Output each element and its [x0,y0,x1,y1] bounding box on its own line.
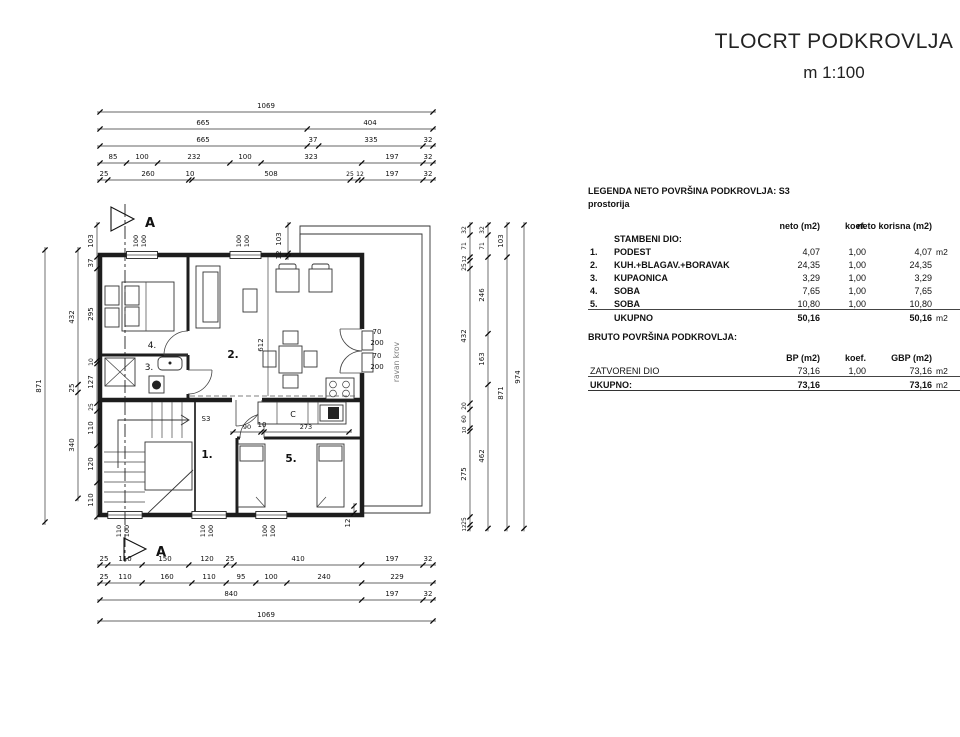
nightstand [105,308,119,327]
living-room-furniture [196,264,332,388]
pillow [125,286,139,305]
legend-header-row: neto (m2) koef. neto korisna (m2) [588,218,960,231]
row-koef: 1,00 [848,366,866,376]
door-swings [164,331,264,438]
dim-label: 1069 [257,611,275,619]
dim-label: 163 [478,352,486,365]
drawing-scale: m 1:100 [688,63,960,83]
dim-label: 32 [424,136,433,144]
dim-chain-right-1 [467,222,472,531]
dim-label: 60 [461,415,468,423]
section-marker-icon [111,207,134,231]
pillow [125,307,139,326]
room-label-5: 5. [285,453,296,465]
dim-label: 197 [385,590,398,598]
total-neto: 50,16 [797,313,820,323]
dim-label: 432 [460,329,468,342]
legend-title: LEGENDA NETO POVRŠINA PODKROVLJA: S3 [588,186,960,199]
dim-label: 275 [460,467,468,480]
row-korisna: 10,80 [909,299,932,309]
coffee-table [243,289,257,312]
nightstand [105,286,119,305]
total-bp: 73,16 [797,380,820,390]
window-size-label: 100 [207,525,215,537]
dim-chain-top-2 [97,126,436,131]
row-name: PODEST [614,247,764,257]
dim-label: 32 [424,170,433,178]
row-neto: 3,29 [802,273,820,283]
dim-label: 95 [237,573,246,581]
col-header-korisna: neto korisna (m2) [857,221,932,231]
page: 1069 665 404 665 37 335 32 85 100 232 10… [0,0,960,737]
total-gbp: 73,16 [909,380,932,390]
dim-label: 871 [35,379,43,392]
row-koef: 1,00 [848,247,866,257]
dim-label: 103 [87,234,95,247]
room-label-2: 2. [227,349,238,361]
col-header-neto: neto (m2) [780,221,821,231]
room-label-1: 1. [201,449,212,461]
dim-label: 110 [202,573,215,581]
row-unit: m2 [932,247,958,257]
dim-label: 10 [186,170,195,178]
dim-label: 462 [478,449,486,462]
row-neto: 10,80 [797,299,820,309]
stair-direction-arrow [118,420,188,468]
dim-label: 120 [87,457,95,470]
chair [283,331,298,344]
dim-label: 25 [88,403,95,411]
dim-label: 25 [461,263,468,271]
door-size-label: 200 [370,363,383,371]
legend-row: 4. SOBA 7,65 1,00 7,65 [588,283,960,296]
dim-label: 1069 [257,102,275,110]
dim-chain-bottom-4 [97,618,436,623]
dim-label: 335 [364,136,377,144]
total-label: UKUPNO [614,313,764,323]
row-koef: 1,00 [848,299,866,309]
dim-label: 197 [385,170,398,178]
bruto-title: BRUTO POVRŠINA PODKROVLJA: [588,332,960,345]
kitchen-dim-273: 273 [300,423,312,431]
window-size-label: 110 [199,525,207,537]
row-name: KUH.+BLAGAV.+BORAVAK [614,260,764,270]
row-num: 4. [588,286,614,296]
dim-label: 840 [224,590,237,598]
window-size-label: 100 [243,235,251,247]
dim-label: 120 [200,555,213,563]
dim-label: 25 [100,170,109,178]
row-koef: 1,00 [848,273,866,283]
row-neto: 4,07 [802,247,820,257]
chair [283,375,298,388]
dim-label: 665 [196,119,209,127]
legend-table: LEGENDA NETO POVRŠINA PODKROVLJA: S3 pro… [588,186,960,323]
dim-label: 32 [461,226,468,234]
armchair [276,269,299,292]
col-header-gbp: GBP (m2) [891,353,932,363]
room4-furniture [105,282,174,331]
window-size-label: 100 [132,235,140,247]
dim-label: 100 [238,153,251,161]
dim-chain-bottom-3 [97,597,436,602]
dim-chain-left-2 [75,247,80,501]
dim-chain-left-1 [42,247,47,525]
terrace-doors [340,329,373,373]
total-label: UKUPNO: [588,380,764,390]
dim-label: 871 [497,386,505,399]
terrace-dim-103: 103 [275,232,283,245]
row-name: KUPAONICA [614,273,764,283]
legend-row: 2. KUH.+BLAGAV.+BORAVAK 24,35 1,00 24,35 [588,257,960,270]
dim-label: 665 [196,136,209,144]
legend-row: 5. SOBA 10,80 1,00 10,80 [588,296,960,310]
terrace-dim-12: 12 [275,251,283,260]
dim-label: 71 [461,242,468,250]
window-size-label: 100 [235,235,243,247]
row-name: ZATVORENI DIO [588,366,764,376]
dim-label: 37 [87,259,95,268]
total-unit: m2 [932,380,958,390]
legend-row: 1. PODEST 4,07 1,00 4,07 m2 [588,244,960,257]
window-size-label: 110 [115,525,123,537]
row-name: SOBA [614,299,764,309]
bruto-table: BRUTO POVRŠINA PODKROVLJA: BP (m2) koef.… [588,332,960,391]
dim-label: 25 [68,384,76,393]
dim-label: 12 [462,256,468,263]
stair-label: S3 [202,415,211,423]
dim-chain-top-1 [97,109,436,114]
appliance-label: C [290,410,296,419]
dim-label: 32 [424,555,433,563]
dim-chain-bottom-2 [97,580,436,585]
dim-label: 410 [291,555,304,563]
section-label-bottom: A [156,545,166,560]
dim-label: 32 [424,153,433,161]
row-num: 5. [588,299,614,309]
door-size-label: 70 [373,352,382,360]
dim-label: 404 [363,119,377,127]
dim-label: 32 [424,590,433,598]
dim-label: 110 [118,573,131,581]
staircase [104,402,193,513]
dim-label: 197 [385,153,398,161]
window-size-label: 100 [269,525,277,537]
dim-label: 71 [479,242,486,250]
col-header-bp: BP (m2) [786,353,820,363]
row-koef: 1,00 [848,260,866,270]
row-unit: m2 [932,366,958,376]
drawing-title: TLOCRT PODKROVLJA [688,30,960,54]
window-size-label: 100 [261,525,269,537]
dim-chain-top-3 [97,143,436,148]
dim-label: 12 [356,171,364,178]
dim-label: 85 [109,153,118,161]
interior-dim-612: 612 [257,338,265,351]
dim-chain-top-5 [97,177,436,182]
dim-label: 32 [479,226,486,234]
dim-chain-top-4 [97,160,436,165]
row-name: SOBA [614,286,764,296]
dim-label: 323 [304,153,317,161]
bruto-row: ZATVORENI DIO 73,16 1,00 73,16 m2 [588,363,960,377]
dim-label: 240 [317,573,330,581]
dim-label: 25 [100,573,109,581]
dim-label: 25 [346,171,354,178]
row-korisna: 4,07 [914,247,932,257]
row-korisna: 3,29 [914,273,932,283]
dim-label: 260 [141,170,154,178]
dim-label: 110 [118,555,131,563]
legend-row: 3. KUPAONICA 3,29 1,00 3,29 [588,270,960,283]
kitchen-dim-90: 90 [243,423,251,431]
pillow [240,446,263,461]
dim-label: 295 [87,307,95,320]
dim-label: 508 [264,170,277,178]
dim-label: 100 [264,573,277,581]
chair [263,351,276,367]
flat-roof-label: ravan krov [392,341,401,382]
row-num: 3. [588,273,614,283]
legend-section-row: STAMBENI DIO: [588,231,960,244]
dim-label: 229 [390,573,403,581]
row-num: 1. [588,247,614,257]
row-korisna: 7,65 [914,286,932,296]
dim-label: 12 [462,525,468,532]
dim-label: 110 [87,421,95,434]
dim-label: 103 [497,234,505,247]
dim-label: 160 [160,573,173,581]
dim-label: 246 [478,288,486,302]
room-label-4: 4. [148,341,157,351]
row-bp: 73,16 [797,366,820,376]
row-num: 2. [588,260,614,270]
row-neto: 24,35 [797,260,820,270]
row-koef: 1,00 [848,286,866,296]
dim-label: 100 [135,153,148,161]
row-gbp: 73,16 [909,366,932,376]
dim-label: 127 [87,375,95,388]
door-size-label: 200 [370,339,383,347]
pillow [319,446,342,461]
door-size-label: 70 [373,328,382,336]
dim-label: 197 [385,555,398,563]
dim-label: 110 [87,493,95,506]
bruto-header-row: BP (m2) koef. GBP (m2) [588,350,960,363]
total-korisna: 50,16 [909,313,932,323]
room-label-3: 3. [145,363,154,373]
dim-chain-right-4 [521,222,526,531]
window-size-label: 100 [123,525,131,537]
dim-label: 340 [68,438,76,451]
legend-subtitle: prostorija [588,199,960,213]
bruto-total-row: UKUPNO: 73,16 73,16 m2 [588,377,960,391]
total-unit: m2 [932,313,958,323]
title-block: TLOCRT PODKROVLJA m 1:100 [688,30,960,83]
armchair [309,269,332,292]
dim-label: 20 [461,402,468,410]
dim-label: 10 [462,426,468,433]
row-korisna: 24,35 [909,260,932,270]
dim-label: 10 [88,358,95,366]
legend-total-row: UKUPNO 50,16 50,16 m2 [588,310,960,323]
dining-table [279,346,302,373]
bathroom-fixtures [105,357,182,393]
col-header-koef: koef. [845,353,866,363]
row-neto: 7,65 [802,286,820,296]
dim-chain-terrace-top [285,222,290,260]
dim-chain-right-2 [485,222,490,531]
dim-label: 432 [68,310,76,323]
dim-chain-bottom-1 [97,562,436,567]
window-size-label: 100 [140,235,148,247]
kitchen-dim-10: 10 [258,421,267,429]
dim-label: 37 [309,136,318,144]
section-label: STAMBENI DIO: [614,234,764,244]
dim-label: 974 [514,370,522,384]
dim-label: 232 [187,153,200,161]
dim-label: 25 [226,555,235,563]
dim-chain-right-3 [504,222,509,531]
terrace-dim-12b: 12 [344,519,352,528]
section-label-top: A [145,216,155,231]
chair [304,351,317,367]
dim-label: 25 [461,517,468,525]
dim-label: 25 [100,555,109,563]
